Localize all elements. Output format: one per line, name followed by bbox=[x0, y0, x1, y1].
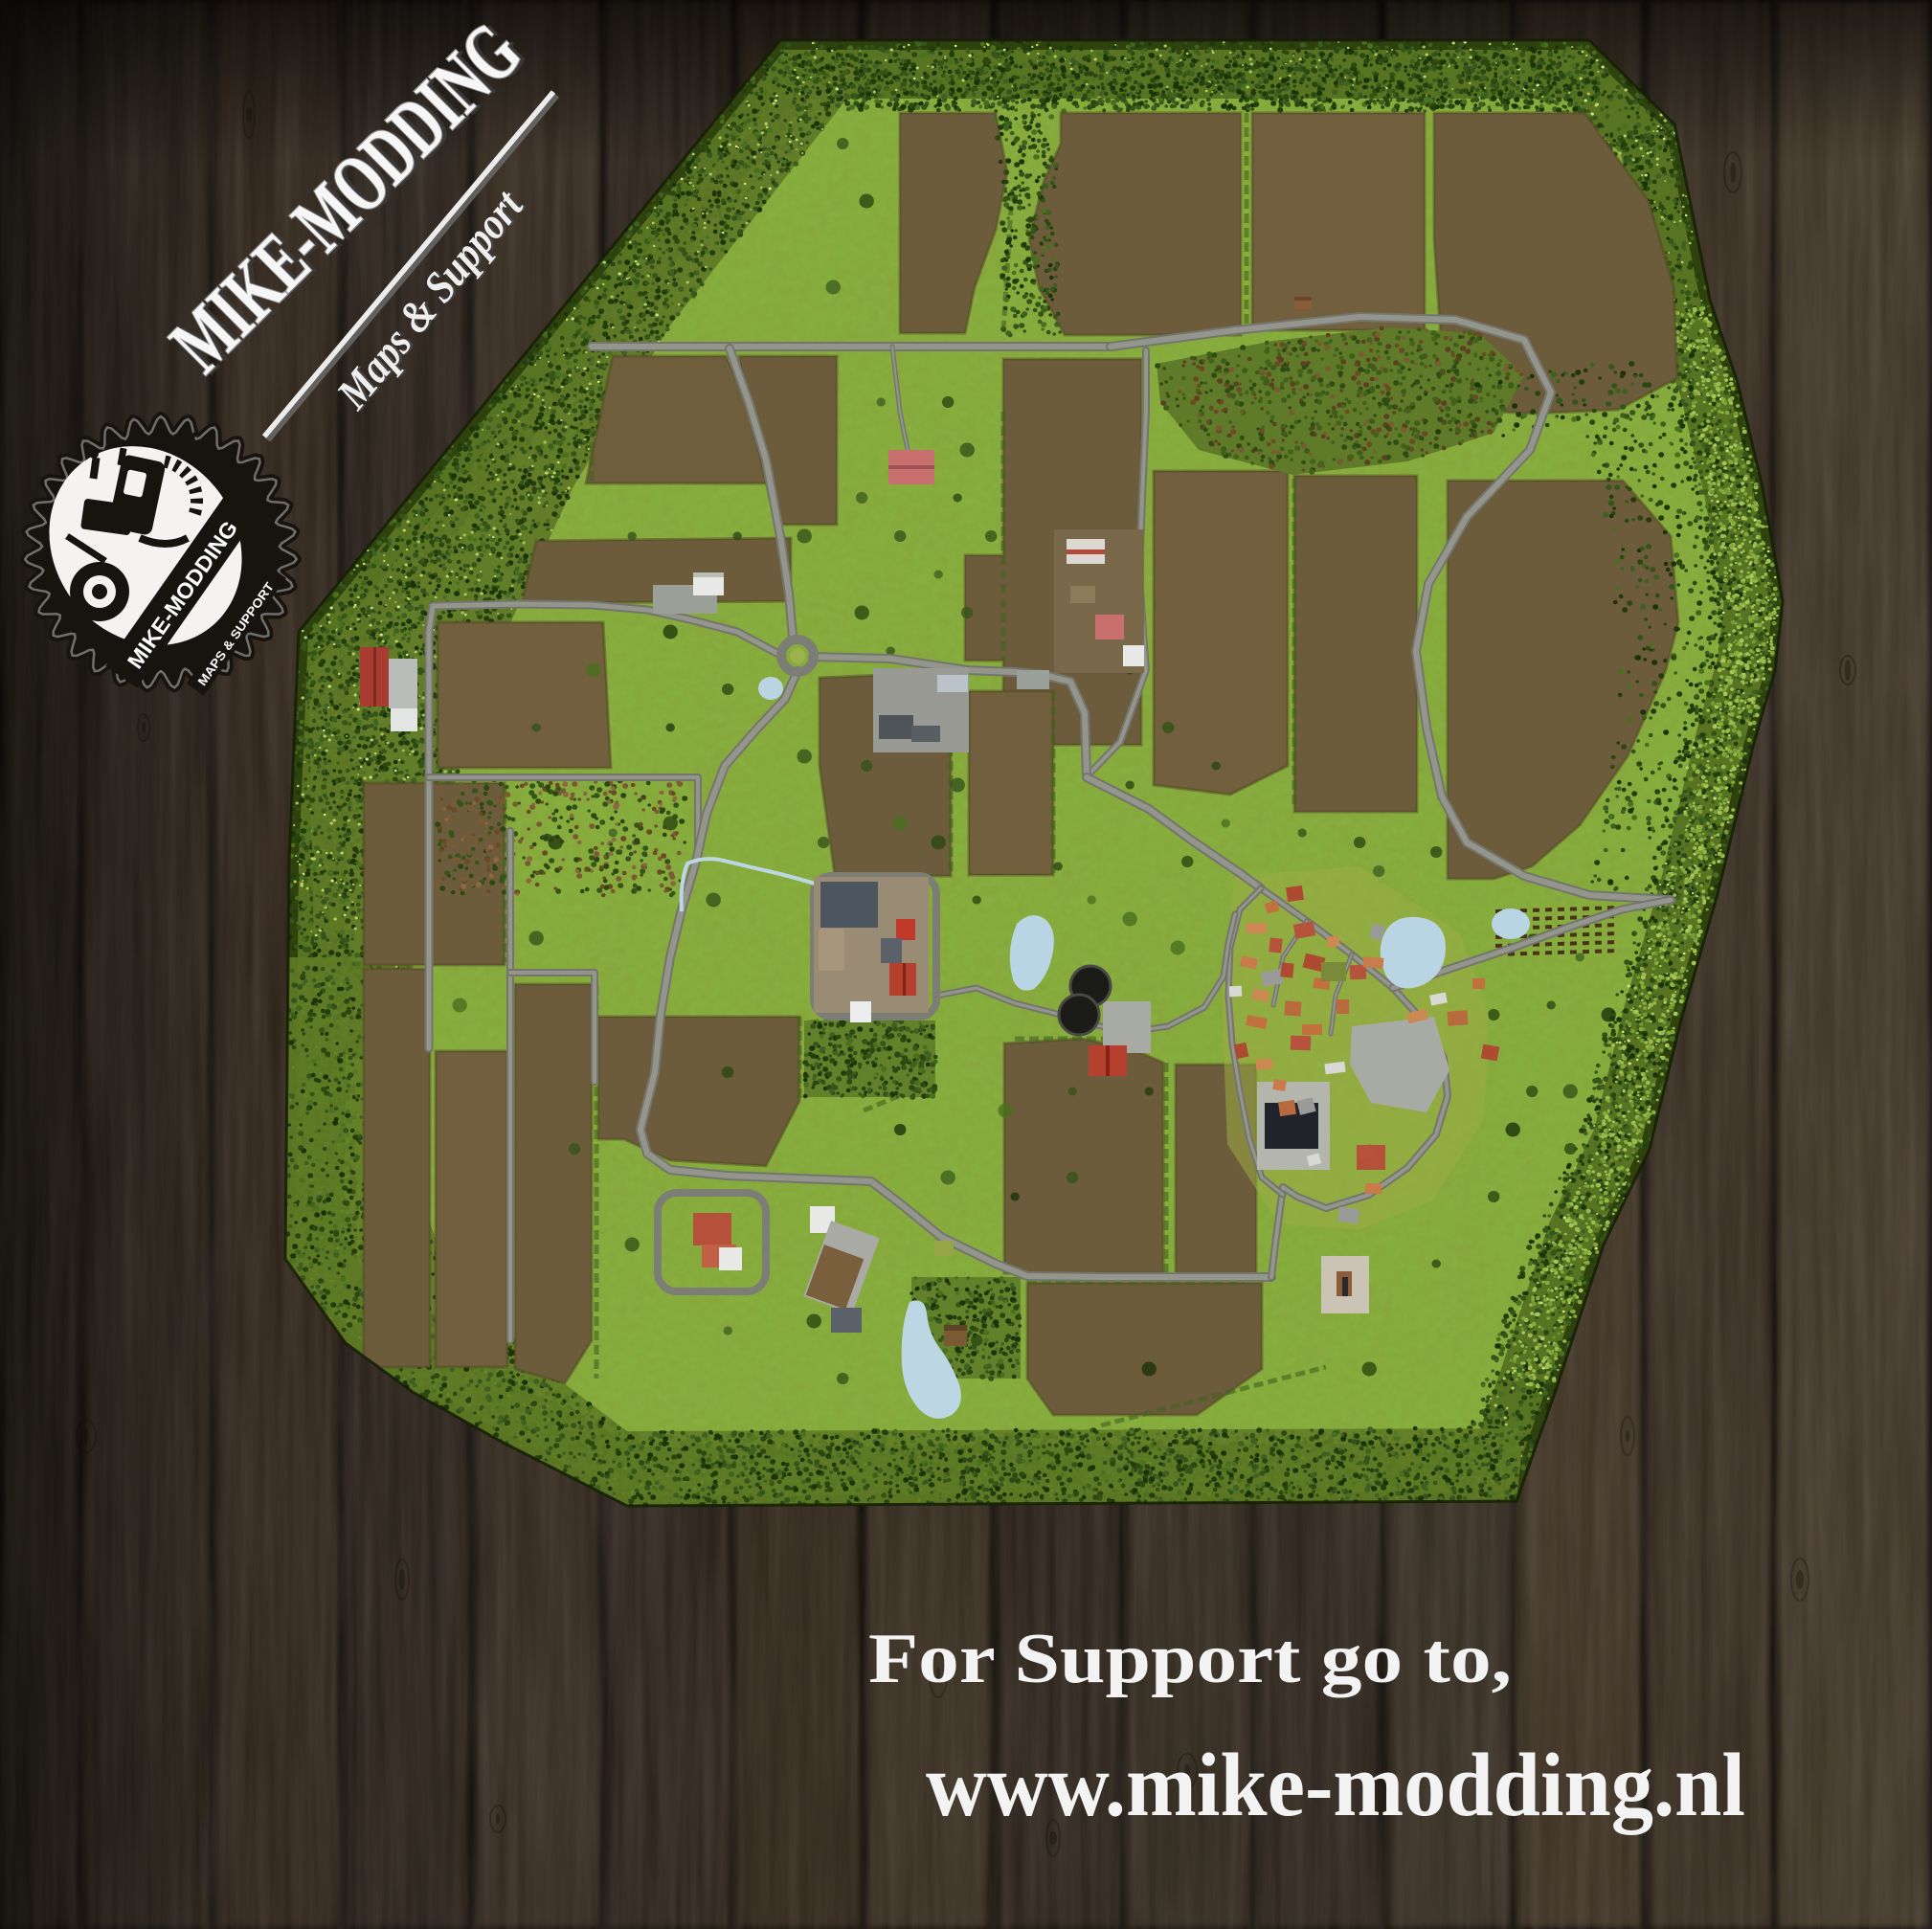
svg-text:www.mike-modding.nl: www.mike-modding.nl bbox=[926, 1736, 1745, 1835]
svg-text:For Support go to,: For Support go to, bbox=[868, 1620, 1512, 1698]
svg-text:MIKE-MODDING: MIKE-MODDING bbox=[153, 5, 538, 389]
